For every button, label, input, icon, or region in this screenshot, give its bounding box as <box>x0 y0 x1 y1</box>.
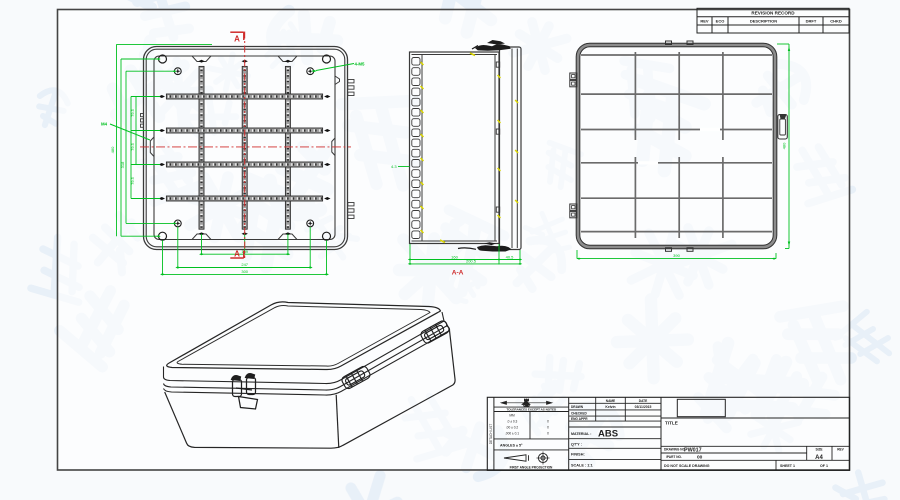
svg-text:DESCRIPTION: DESCRIPTION <box>750 19 777 24</box>
svg-text:A-A: A-A <box>452 270 464 277</box>
svg-text:00: 00 <box>697 455 703 461</box>
svg-text:A: A <box>234 34 240 43</box>
svg-text:FIRST ANGLE PROJECTION: FIRST ANGLE PROJECTION <box>510 465 553 469</box>
svg-text:200.5: 200.5 <box>466 259 477 264</box>
svg-text:.00 ± 0.2: .00 ± 0.2 <box>506 425 519 429</box>
svg-text:318: 318 <box>120 161 125 168</box>
svg-text:ABS: ABS <box>598 429 618 440</box>
svg-text:300: 300 <box>241 269 248 274</box>
svg-text:ECO: ECO <box>716 19 725 24</box>
svg-text:MM: MM <box>509 413 515 417</box>
svg-text:4-M5: 4-M5 <box>355 62 366 67</box>
svg-text:FINISH:: FINISH: <box>571 453 585 457</box>
svg-text:DRFT: DRFT <box>806 19 817 24</box>
svg-text:REV: REV <box>700 19 709 24</box>
svg-text:DETACH LIST: DETACH LIST <box>489 424 493 445</box>
svg-text:A: A <box>234 250 240 259</box>
svg-text:TOLERANCES EXCEPT AS NOTED: TOLERANCES EXCEPT AS NOTED <box>506 408 557 412</box>
svg-text:Kelvin: Kelvin <box>605 405 615 409</box>
svg-text:SCALE : 1:1: SCALE : 1:1 <box>571 464 593 468</box>
svg-text:REVISION RECORD: REVISION RECORD <box>751 11 795 16</box>
svg-text:CHKD: CHKD <box>830 19 842 24</box>
svg-text:MATERIAL :: MATERIAL : <box>571 432 591 436</box>
svg-text:DRAWING NO.: DRAWING NO. <box>664 448 686 452</box>
svg-text:79.5: 79.5 <box>130 142 135 151</box>
svg-text:DO NOT SCALE DRAWING: DO NOT SCALE DRAWING <box>664 464 710 468</box>
svg-text:480: 480 <box>110 146 115 153</box>
svg-text:SHEET 1: SHEET 1 <box>780 464 795 468</box>
svg-text:ENG APPR: ENG APPR <box>571 417 588 421</box>
svg-text:79.5: 79.5 <box>130 108 135 117</box>
svg-text:390: 390 <box>673 253 680 258</box>
svg-text:CHECKED: CHECKED <box>571 411 587 415</box>
svg-text:/PART NO.: /PART NO. <box>666 455 682 459</box>
svg-text:03/11/2015: 03/11/2015 <box>635 405 652 409</box>
svg-text:OF 1: OF 1 <box>820 464 828 468</box>
svg-text:DRAWN: DRAWN <box>571 405 584 409</box>
svg-text:M4: M4 <box>101 122 108 127</box>
svg-text:QT'Y :: QT'Y : <box>571 442 582 446</box>
svg-text:480: 480 <box>782 142 787 149</box>
svg-text:SIZE: SIZE <box>815 448 822 452</box>
svg-text:.000 ± 0.1: .000 ± 0.1 <box>505 431 519 435</box>
svg-text:40.5: 40.5 <box>506 254 515 259</box>
svg-text:DATE: DATE <box>639 399 647 403</box>
svg-text:MM: MM <box>524 398 529 402</box>
svg-text:ANGLES ± 5°: ANGLES ± 5° <box>500 443 523 447</box>
svg-text:NAME: NAME <box>606 399 615 403</box>
svg-text:.0 ± 0.3: .0 ± 0.3 <box>507 419 518 423</box>
svg-text:79.5: 79.5 <box>130 176 135 185</box>
svg-text:REV: REV <box>837 448 844 452</box>
svg-text:TITLE: TITLE <box>665 421 678 426</box>
svg-text:160: 160 <box>451 254 458 259</box>
svg-text:4.3: 4.3 <box>391 164 397 169</box>
svg-text:247: 247 <box>241 262 248 267</box>
